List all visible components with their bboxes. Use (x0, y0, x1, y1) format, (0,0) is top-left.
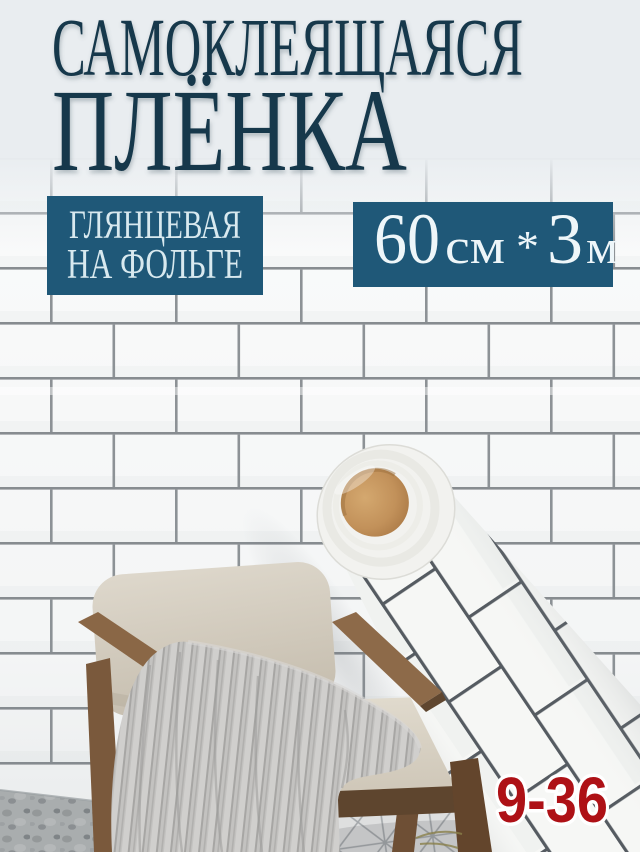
wall-light-band (0, 387, 640, 395)
size-badge: 60 см * 3 м (353, 199, 618, 287)
sku-code: 9-36 (496, 764, 608, 836)
finish-badge-line-1: ГЛЯНЦЕВАЯ (69, 202, 241, 247)
size-length-unit: м (586, 221, 618, 274)
size-separator: * (516, 221, 539, 272)
size-width-value: 60 (374, 199, 440, 279)
finish-badge: ГЛЯНЦЕВАЯ НА ФОЛЬГЕ (47, 196, 263, 295)
product-card: САМОКЛЕЯЩАЯСЯ ПЛЁНКА ГЛЯНЦЕВАЯ НА ФОЛЬГЕ… (0, 0, 640, 852)
size-width-unit: см (445, 218, 505, 274)
title-line-2: ПЛЁНКА (52, 65, 407, 196)
size-length-value: 3 (547, 199, 583, 279)
product-photo: САМОКЛЕЯЩАЯСЯ ПЛЁНКА ГЛЯНЦЕВАЯ НА ФОЛЬГЕ… (0, 0, 640, 852)
finish-badge-line-2: НА ФОЛЬГЕ (67, 242, 243, 288)
